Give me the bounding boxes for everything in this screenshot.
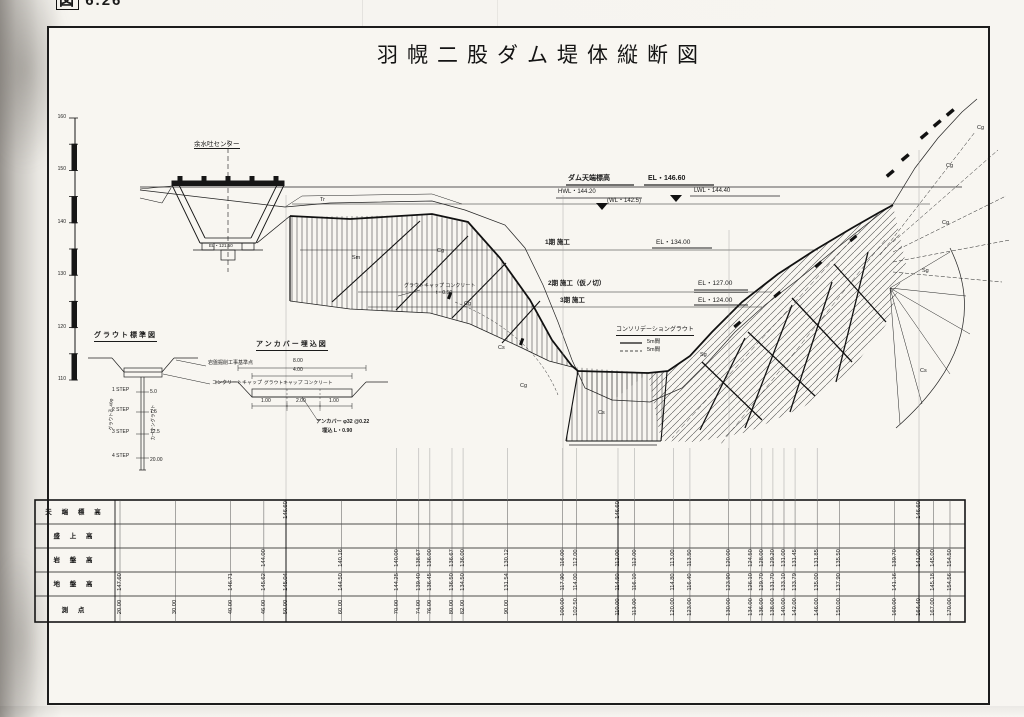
- detail-grout-cap-label: コンクリートキャップ: [212, 381, 262, 387]
- grout-cap-label: グラウトキャップ コンクリート: [404, 284, 475, 290]
- table-value: 114.50: [615, 569, 621, 595]
- table-value: 40.00: [228, 594, 234, 620]
- grout-depth-label: 20.00: [150, 458, 163, 464]
- stage3-elevation: EL・124.00: [698, 297, 732, 304]
- table-value: 146.60: [615, 497, 621, 523]
- table-value: 80.00: [449, 594, 455, 620]
- table-value: 136.45: [427, 569, 433, 595]
- table-value: 129.20: [770, 545, 776, 571]
- table-value: 130.00: [726, 594, 732, 620]
- dam-longitudinal-section-drawing: [0, 0, 1024, 717]
- dim-4m: 4.00: [293, 368, 303, 374]
- table-value: 82.00: [460, 594, 466, 620]
- table-value: 30.00: [172, 594, 178, 620]
- table-value: 140.00: [394, 545, 400, 571]
- table-value: 114.00: [573, 569, 579, 595]
- figure-number: 図 6.26: [56, 0, 122, 10]
- table-value: 131.54: [504, 569, 510, 595]
- table-value: 123.00: [687, 594, 693, 620]
- table-value: 138.00: [770, 594, 776, 620]
- table-value: 146.60: [916, 497, 922, 523]
- grout-cap-thickness: t・0.50: [436, 291, 452, 297]
- table-value: 141.00: [916, 545, 922, 571]
- table-value: 146.00: [814, 594, 820, 620]
- grout-step-label: 3 STEP: [112, 430, 129, 436]
- wl-label: (WL・142.5): [607, 198, 641, 205]
- geology-label: Sg: [922, 268, 929, 274]
- table-value: 150.00: [836, 594, 842, 620]
- table-row-label: 天 端 標 高: [37, 506, 113, 520]
- table-value: 102.50: [573, 594, 579, 620]
- spillway-invert-el: EL・121.50: [209, 244, 233, 249]
- geology-label: Cg: [942, 220, 949, 226]
- geology-label: Sm: [352, 255, 360, 261]
- table-value: 146.60: [283, 497, 289, 523]
- geology-label: Cs: [598, 410, 605, 416]
- crest-elevation-value: EL・146.60: [648, 175, 685, 183]
- table-value: 144.00: [261, 545, 267, 571]
- figure-number-text: 6.26: [85, 0, 122, 9]
- table-value: 131.45: [792, 545, 798, 571]
- scale-tick-label: 120: [48, 324, 66, 330]
- legend-solid-label: 5m間: [647, 339, 660, 345]
- table-value: 139.70: [892, 545, 898, 571]
- table-value: 50.00: [283, 594, 289, 620]
- table-value: 136.67: [449, 545, 455, 571]
- table-value: 74.00: [416, 594, 422, 620]
- geology-label: Cg: [437, 248, 444, 254]
- figure-prefix-boxed: 図: [56, 0, 79, 10]
- table-value: 131.00: [781, 545, 787, 571]
- table-value: 142.00: [792, 594, 798, 620]
- detail-anchor-cap-label: グラウトキャップ コンクリート: [264, 381, 333, 386]
- table-value: 145.04: [283, 569, 289, 595]
- table-value: 120.00: [726, 545, 732, 571]
- table-value: 134.00: [748, 594, 754, 620]
- table-value: 154.56: [947, 569, 953, 595]
- table-value: 164.40: [916, 594, 922, 620]
- table-value: 131.85: [814, 545, 820, 571]
- legend-title: コンソリデーショングラウト: [616, 327, 694, 336]
- table-value: 135.00: [814, 569, 820, 595]
- table-value: 133.10: [781, 569, 787, 595]
- table-value: 170.00: [947, 594, 953, 620]
- grout-step-label: 2 STEP: [112, 408, 129, 414]
- table-value: 76.00: [427, 594, 433, 620]
- table-value: 116.10: [632, 569, 638, 595]
- grout-step-label: 4 STEP: [112, 454, 129, 460]
- table-value: 131.70: [770, 569, 776, 595]
- table-value: 167.00: [930, 594, 936, 620]
- scanned-drawing-page: 図 6.26 羽幌二股ダム堤体縦断図 160150140130120110 余水…: [0, 0, 1024, 717]
- detail-grout-rock-ref: 岩盤掘削工事基準点: [208, 361, 253, 367]
- geology-label: Tr: [320, 197, 325, 203]
- dim-center-2m: 2.00: [296, 399, 306, 405]
- stage3-label: 3期 施工: [560, 297, 585, 304]
- table-row-label: 地 盤 高: [37, 578, 113, 592]
- table-value: 130.12: [504, 545, 510, 571]
- geology-label: Cg: [977, 125, 984, 131]
- scale-tick-label: 160: [48, 114, 66, 120]
- scale-tick-label: 110: [48, 376, 66, 382]
- grout-depth-label: 12.5: [150, 430, 160, 436]
- table-row-label: 岩 盤 高: [37, 554, 113, 568]
- grout-depth-label: 7.5: [150, 410, 157, 416]
- table-value: 117.90: [560, 569, 566, 595]
- dim-right-1m: 1.00: [329, 399, 339, 405]
- table-value: 135.50: [836, 545, 842, 571]
- page-title: 羽幌二股ダム堤体縦断図: [352, 44, 732, 67]
- table-value: 123.90: [726, 569, 732, 595]
- table-value: 113.50: [687, 545, 693, 571]
- table-value: 20.00: [117, 594, 123, 620]
- legend-dashed-label: 5m間: [647, 347, 660, 353]
- table-value: 144.50: [338, 569, 344, 595]
- table-value: 141.16: [892, 569, 898, 595]
- table-row-label: 盛 上 高: [37, 530, 113, 544]
- stage2-elevation: EL・127.00: [698, 280, 732, 287]
- table-value: 112.00: [573, 545, 579, 571]
- table-value: 113.00: [632, 594, 638, 620]
- table-value: 137.90: [836, 569, 842, 595]
- anchor-note-embed: 埋込 L・0.90: [322, 429, 352, 435]
- table-value: 140.00: [781, 594, 787, 620]
- table-value: 160.00: [892, 594, 898, 620]
- table-value: 129.70: [759, 569, 765, 595]
- table-value: 145.18: [930, 569, 936, 595]
- table-value: 110.00: [615, 594, 621, 620]
- detail-grout-hole-label: グラウト孔 40φ: [109, 399, 114, 431]
- table-value: 60.00: [338, 594, 344, 620]
- table-value: 134.50: [460, 569, 466, 595]
- geology-label: Cg: [946, 163, 953, 169]
- detail-anchor-title: アンカバー埋込図: [256, 341, 328, 351]
- table-value: 147.60: [117, 569, 123, 595]
- table-value: 154.50: [947, 545, 953, 571]
- table-value: 136.00: [759, 594, 765, 620]
- table-value: 126.10: [748, 569, 754, 595]
- scale-tick-label: 140: [48, 219, 66, 225]
- scale-tick-label: 130: [48, 271, 66, 277]
- anchor-note-spec: アンカバー φ32 @0.22: [316, 420, 369, 426]
- table-value: 112.00: [615, 545, 621, 571]
- table-value: 100.00: [560, 594, 566, 620]
- table-value: 90.00: [504, 594, 510, 620]
- table-value: 120.00: [670, 594, 676, 620]
- table-value: 133.79: [792, 569, 798, 595]
- geology-label: Cg: [464, 301, 471, 307]
- table-row-label: 測 点: [37, 604, 113, 618]
- stage2-label: 2期 施工（仮ノ切）: [548, 280, 605, 287]
- table-value: 113.00: [670, 545, 676, 571]
- table-value: 70.00: [394, 594, 400, 620]
- table-value: 140.16: [338, 545, 344, 571]
- spillway-center-label: 余水吐センター: [194, 141, 240, 149]
- geology-label: Cg: [520, 383, 527, 389]
- geology-label: Sg: [700, 352, 707, 358]
- table-value: 112.00: [632, 545, 638, 571]
- stage1-label: 1期 施工: [545, 239, 570, 246]
- table-value: 46.00: [261, 594, 267, 620]
- crest-elevation-title: ダム天端標高: [568, 175, 610, 183]
- geology-label: Cs: [498, 345, 505, 351]
- table-value: 145.62: [261, 569, 267, 595]
- table-value: 138.67: [416, 545, 422, 571]
- table-value: 139.40: [416, 569, 422, 595]
- scale-tick-label: 150: [48, 166, 66, 172]
- stage1-elevation: EL・134.00: [656, 239, 690, 246]
- table-value: 128.00: [759, 545, 765, 571]
- table-value: 116.00: [560, 545, 566, 571]
- table-value: 144.25: [394, 569, 400, 595]
- dim-left-1m: 1.00: [261, 399, 271, 405]
- table-value: 136.00: [427, 545, 433, 571]
- geology-label: Cs: [920, 368, 927, 374]
- table-value: 114.80: [670, 569, 676, 595]
- table-value: 136.50: [449, 569, 455, 595]
- table-value: 116.40: [687, 569, 693, 595]
- nwl-label: LWL・144.40: [694, 188, 730, 195]
- table-value: 145.00: [930, 545, 936, 571]
- dim-8m: 8.00: [293, 359, 303, 365]
- table-value: 124.50: [748, 545, 754, 571]
- grout-depth-label: 5.0: [150, 390, 157, 396]
- detail-grout-title: グラウト標準図: [94, 332, 157, 342]
- table-value: 136.00: [460, 545, 466, 571]
- grout-step-label: 1 STEP: [112, 388, 129, 394]
- hwl-label: HWL・144.20: [558, 189, 596, 196]
- table-value: 146.71: [228, 569, 234, 595]
